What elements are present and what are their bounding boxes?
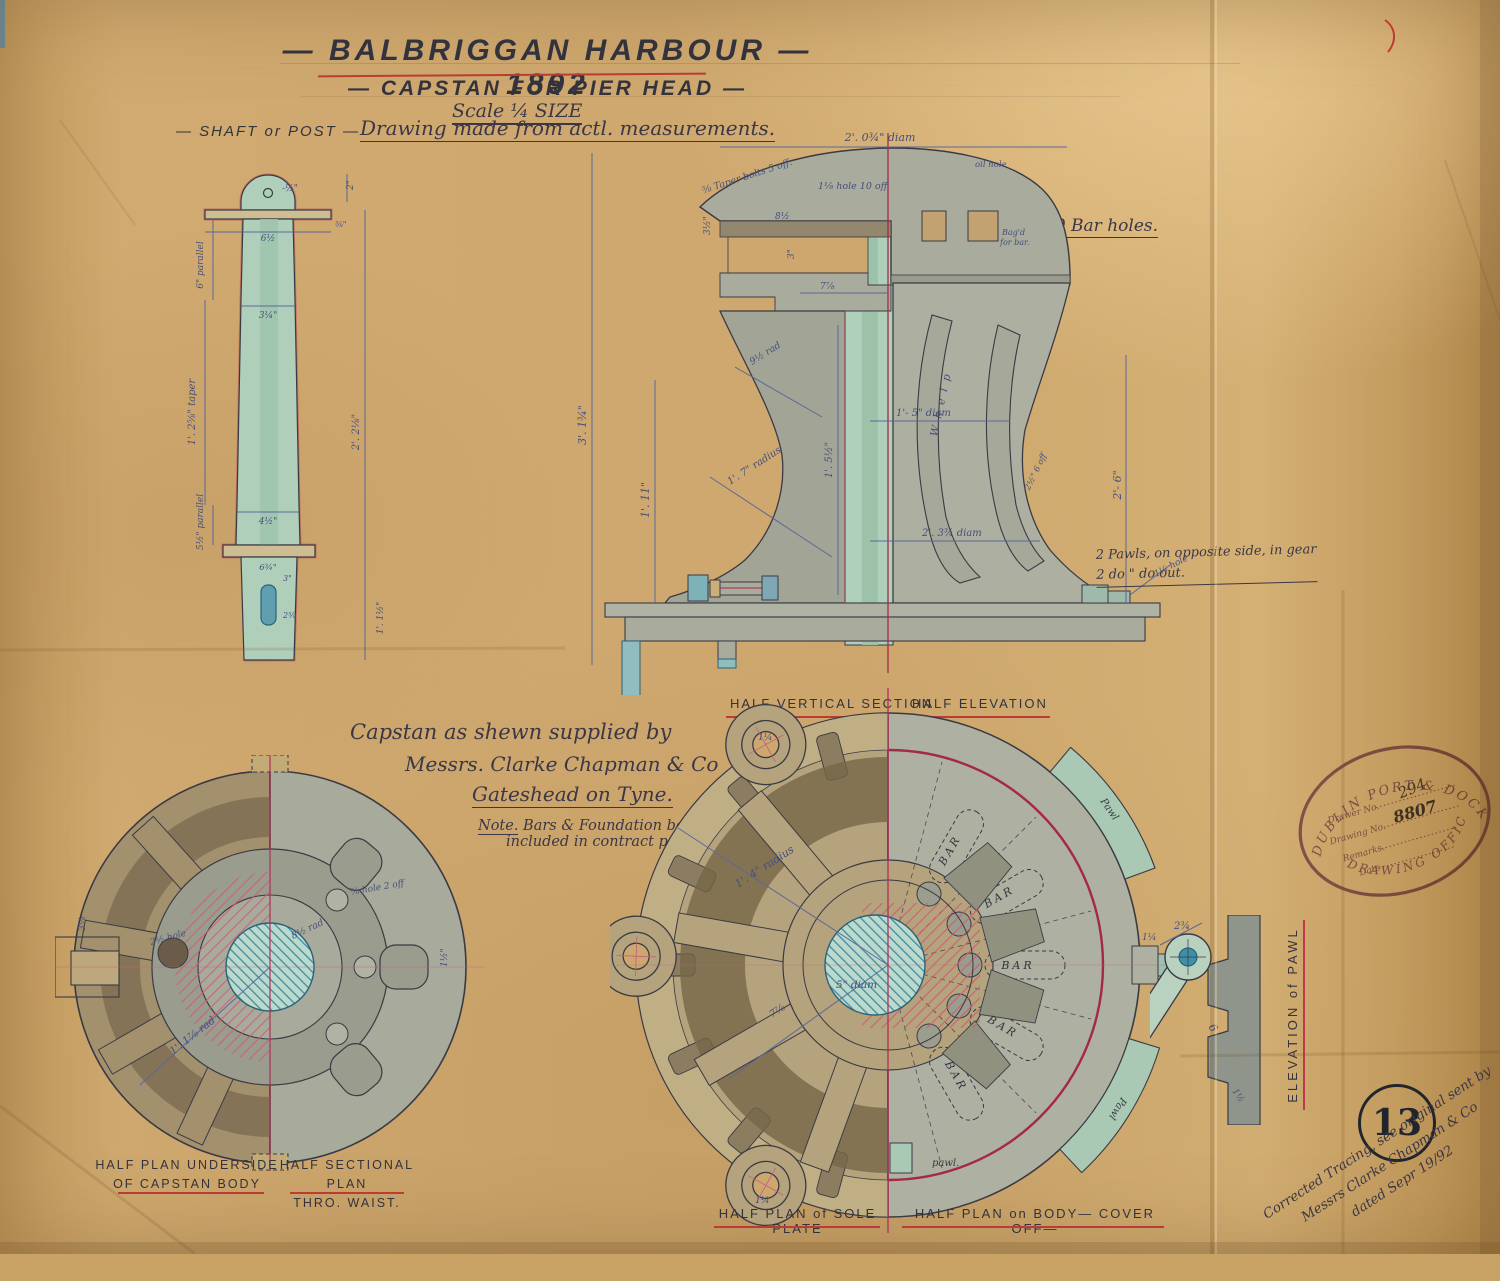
dim-pawl-length: 6 — [1206, 1021, 1221, 1034]
dim-dia-base: 2'. 3¾ diam — [921, 528, 982, 539]
dim-parallel-bottom: 5½" parallel — [195, 494, 206, 550]
label-underside-line1: HALF PLAN UNDERSIDE — [92, 1156, 282, 1175]
dim-hole: -½" — [282, 183, 298, 194]
dim-top-dia: 2'. 0¾" diam — [844, 131, 916, 144]
pawl-fitting — [1108, 591, 1130, 603]
bar-label: BAR — [1000, 959, 1034, 972]
base-bolt — [718, 641, 736, 661]
dim-boss: 3⅛ — [78, 916, 88, 931]
bar-hole — [968, 211, 998, 241]
pawl-view-drawing: 2¾ 6 1½ — [1150, 915, 1300, 1125]
pawl-small-label: pawl. — [932, 1158, 959, 1169]
base-bolt-nut — [718, 659, 736, 668]
shaft-view-drawing: -½" 6½ ⅜" 2" 6" parallel 3¼" 1'. 2⅝" tap… — [165, 160, 400, 685]
dim-shaft-dia: 5" diam — [836, 979, 877, 991]
dim-dia-bottom: 4½" — [258, 516, 278, 527]
hole10-note: 1⅛ hole 10 off — [818, 181, 890, 192]
pawls-note: 2 Pawls, on opposite side, in gear 2 do … — [1095, 540, 1317, 588]
sole-plan-drawing: 1'. 4" radius 7⅞ 5" diam 1¼ 1¼ 1¼ BAR BA… — [610, 688, 1170, 1233]
dim-head-height: 2" — [346, 180, 356, 191]
oil-hole-label: oil hole — [975, 160, 1007, 170]
label-underside-plan: HALF PLAN UNDERSIDE OF CAPSTAN BODY — [92, 1156, 282, 1194]
label-sectional-plan: HALF SECTIONAL PLAN THRO. WAIST. — [262, 1156, 432, 1212]
pawl-bottom-tab — [890, 1143, 912, 1173]
dim-lobe-hole-top: 1¼ — [758, 732, 772, 743]
label-underline — [290, 1192, 404, 1194]
dim-rad-base: 1'. 7" radius — [726, 445, 784, 488]
section-view-drawing: 3'. 1¾" 1'. 11" 2'. 0¾" diam oil hole 2'… — [570, 125, 1270, 695]
dim-plate: 8½ — [775, 211, 789, 222]
dim-tail: 1'. 1½" — [375, 602, 386, 635]
label-underside-line2: OF CAPSTAN BODY — [92, 1175, 282, 1194]
dim-height-inner: 1'. 11" — [639, 482, 652, 518]
dim-pawl-width: 2¾ — [1173, 921, 1190, 932]
dim-taper-length: 1'. 2⅝" taper — [187, 378, 198, 446]
label-underline — [902, 1226, 1164, 1228]
label-sole-plate: HALF PLAN of SOLE PLATE — [700, 1206, 895, 1236]
dim-lip: 3½" — [702, 216, 713, 235]
dim-height-right: 2'- 6" — [1111, 470, 1124, 500]
dim-cotter-offset: 3" — [283, 574, 292, 583]
section-chamber-void — [728, 237, 868, 273]
dim-slot: 1½" — [439, 948, 450, 967]
label-sectional-line1: HALF SECTIONAL PLAN — [262, 1156, 432, 1194]
bagd-note-2: for bar. — [999, 238, 1030, 247]
label-underline — [714, 1226, 880, 1228]
label-sectional-line2: THRO. WAIST. — [262, 1194, 432, 1213]
dim-collar-width: 6½ — [261, 233, 275, 244]
dim-height-overall: 3'. 1¾" — [576, 405, 589, 445]
shaft-body — [205, 175, 331, 660]
page-subtitle: — CAPSTAN FOR PIER HEAD — — [330, 77, 765, 101]
dim-lobe-hole-bottom: 1¼ — [755, 1195, 769, 1206]
section-plate-band — [720, 221, 891, 237]
dim-collar-thk: ⅜" — [335, 220, 346, 229]
bar-hole — [922, 211, 946, 241]
foundation-bolt — [622, 641, 640, 695]
label-underline — [118, 1192, 264, 1194]
dim-overall: 2'. 2⅛" — [351, 414, 362, 451]
sole-plate-base — [625, 617, 1145, 641]
bagd-note-1: Bag'd — [1001, 228, 1025, 237]
underside-plan-drawing: 2½ hole ⅞ hole 2 off 1'. 1⅞ rad 8½ rad 1… — [55, 755, 485, 1171]
dim-collar2-width: 6¾" — [259, 562, 277, 573]
dim-depth: 7⅞ — [820, 282, 835, 292]
dim-dia-top: 3¼" — [259, 310, 278, 321]
dim-core: 1'. 5½" — [824, 442, 835, 478]
dim-whelp-width: 2½" 6 off — [1022, 450, 1051, 493]
section-flange — [720, 273, 891, 311]
dim-cotter: 2⅝ — [282, 611, 296, 620]
label-elevation-of-pawl: ELEVATION of PAWL — [1285, 920, 1305, 1110]
sole-plate-top — [605, 603, 1160, 617]
stamp-drawing-no-value: 8807 — [1390, 796, 1439, 827]
dim-chamber: 3" — [787, 249, 797, 259]
label-body-cover-off: HALF PLAN on BODY— COVER OFF— — [900, 1206, 1170, 1236]
shaft-heading: — SHAFT or POST — — [176, 123, 360, 140]
dim-parallel-top: 6" parallel — [196, 241, 206, 289]
